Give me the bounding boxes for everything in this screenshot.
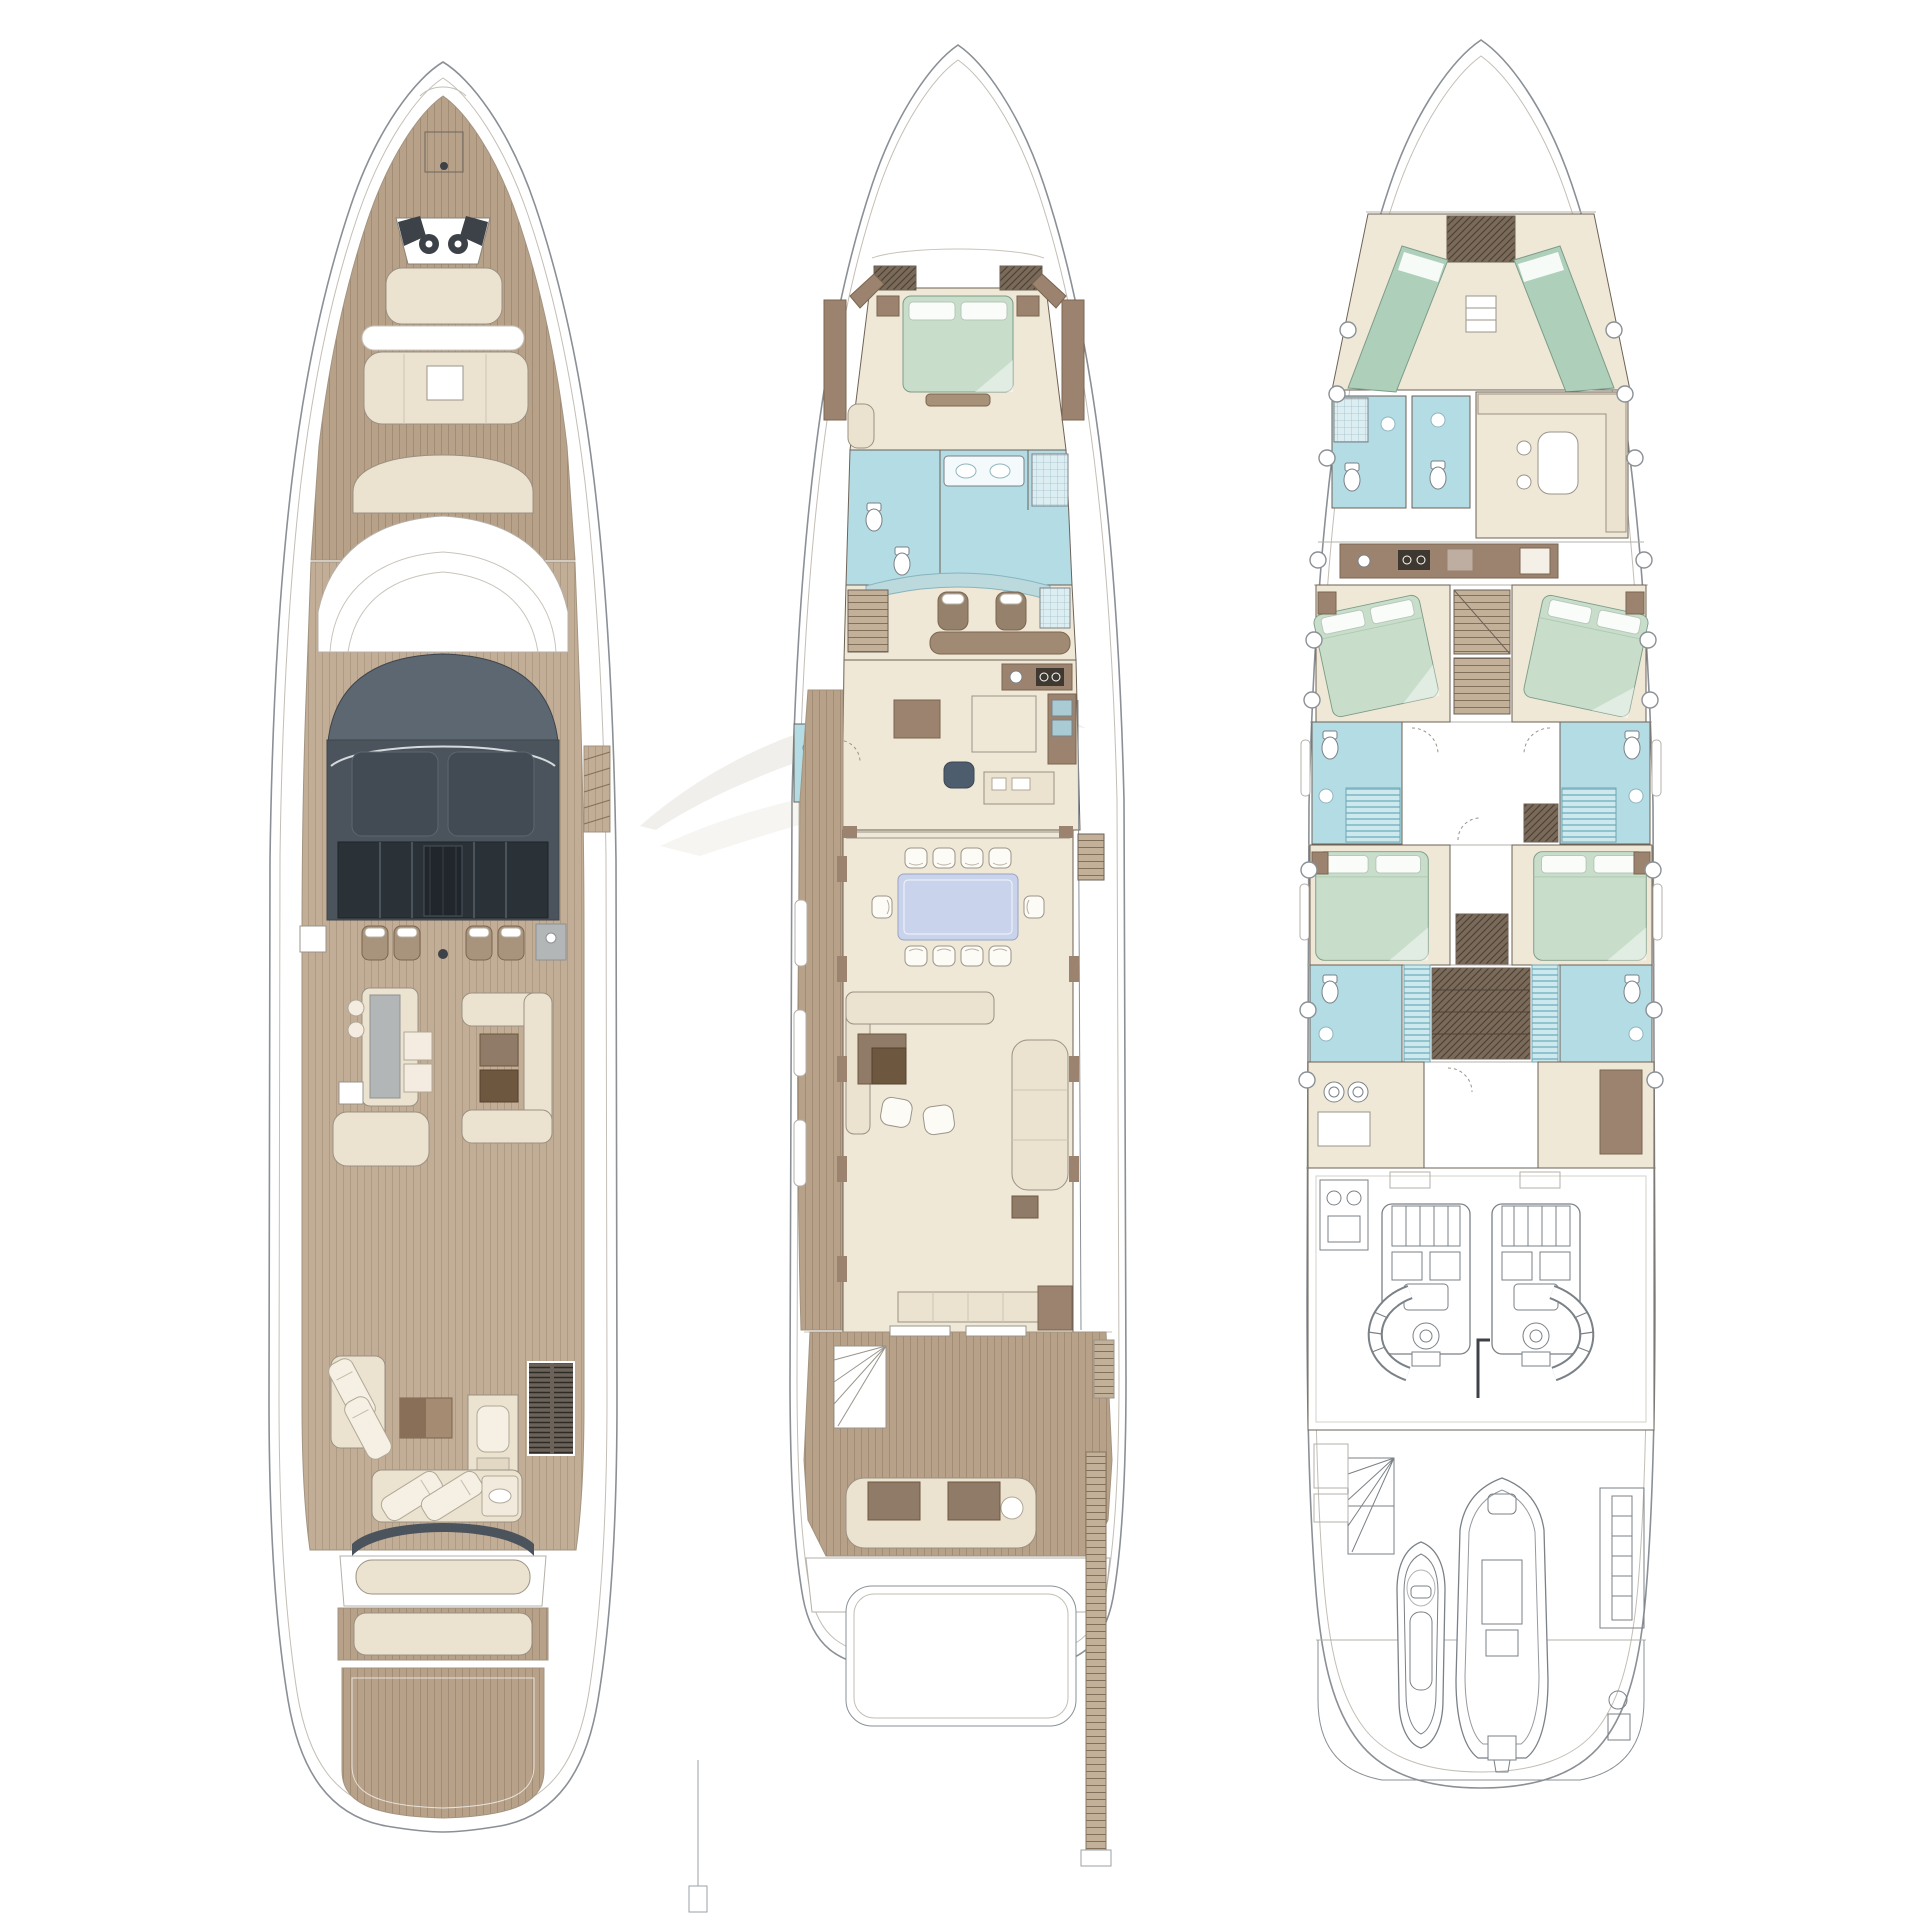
sink [1381,417,1395,431]
sink [1319,789,1333,803]
flybridge-helm-seat [498,926,524,960]
engine-room [1308,1168,1654,1430]
wheelhouse-helm-seat [938,592,968,630]
galley-sink [1358,555,1370,567]
window-mullion [837,1156,847,1182]
bed-bench [926,394,990,406]
port-engine [1368,1204,1470,1374]
shower [1404,965,1430,1062]
galley-island [972,696,1036,752]
flybridge-helm-seat [466,926,492,960]
louvered-vent [528,1362,574,1455]
fridge [1052,720,1072,736]
crew-wardrobe [1447,216,1515,262]
deck-table-half [400,1398,426,1438]
galley-sink [1010,671,1022,683]
bar-table [404,1064,432,1092]
coffee-table [872,1048,906,1084]
hatch-fitting [440,162,448,170]
desk-item [1012,778,1030,790]
yacht-deck-plans-page [0,0,1920,1922]
passerelle [1086,1452,1106,1850]
settee-table [427,366,463,400]
fridge [1052,700,1072,716]
side-table [1012,1196,1038,1218]
dresser-starboard [1062,300,1084,420]
chaise-sofa [1012,1040,1068,1190]
dresser-port [824,300,846,420]
desk-chair [944,762,974,788]
main-deck-plan [640,45,1126,1866]
bar-stool [348,1000,364,1016]
toilet [1322,731,1338,759]
chart-table [1040,588,1070,628]
aft-band-sunpad [356,1560,530,1594]
fridge [1520,548,1550,574]
stair-down [848,590,888,652]
stool [1517,475,1531,489]
sink [1629,789,1643,803]
guest-bed [1316,852,1429,961]
counter [1318,1112,1370,1146]
wheelhouse-helm-seat [996,592,1026,630]
appliance [1448,550,1472,570]
port-side-deck [798,690,843,1330]
toilet [1344,463,1360,491]
sink [1431,413,1445,427]
shower [1532,965,1558,1062]
bed-pillow [909,302,955,320]
cabinet [1600,1070,1642,1154]
flybridge-helm-seat [394,926,420,960]
window-mullion [1069,1156,1079,1182]
lower-deck-plan [1299,40,1663,1788]
owner-cabin [824,266,1084,450]
window-mullion [837,1056,847,1082]
dining-table [898,874,1018,940]
hull-window [1301,740,1310,796]
door-post [1059,826,1073,838]
hull-window [1300,884,1309,940]
door-post [843,826,857,838]
window-mullion [1069,1056,1079,1082]
side-table [300,926,326,952]
side-stairs-starboard [584,746,610,832]
stair-strip [1094,1340,1114,1398]
salon-sofa-seat [846,992,994,1024]
washer [1348,1082,1368,1102]
crew-bathroom [1412,396,1470,508]
control-cabinet [1320,1180,1368,1250]
windlass-cap [455,241,462,248]
window-mullion [837,956,847,982]
helm-platform [930,632,1070,654]
cockpit-door [890,1326,950,1336]
walkway-band [362,326,524,350]
coffee-table [480,1070,518,1102]
bar-stool [348,1022,364,1038]
flybridge-sofa-port [333,1112,429,1166]
cabinet-pad [477,1406,509,1452]
companionway-step [1466,296,1496,332]
tender-boat [1456,1478,1548,1772]
sink [1319,1027,1333,1041]
desk-item [992,778,1006,790]
nightstand [1017,296,1039,316]
bow-sunpad [386,268,502,324]
owner-bathroom [846,450,1072,585]
central-stair-block [1432,968,1530,1059]
stair-starboard [1078,834,1104,880]
hull-window [795,900,807,966]
nightstand [1318,592,1336,614]
toilet [1624,975,1640,1003]
side-table [339,1082,363,1104]
toilet [1624,731,1640,759]
bidet [866,503,882,531]
passerelle-foot [689,1886,707,1912]
sink [990,464,1010,478]
washer [1324,1082,1344,1102]
toilet [1322,975,1338,1003]
lowered-swim-platform [846,1586,1076,1726]
cockpit-fan-stairs [834,1346,886,1428]
window-mullion [837,1256,847,1282]
hull-window [1652,740,1661,796]
passerelle-foot [1081,1850,1111,1866]
hardtop-skylight [352,752,438,836]
crew-shower [1334,398,1368,442]
bed-pillow [961,302,1007,320]
shower [1032,454,1068,506]
closet [1524,804,1558,842]
armchair [879,1096,913,1129]
hardtop-skylight [448,752,534,836]
bar-sink [546,933,556,943]
bench-cushion [948,1482,1000,1520]
toilet [894,547,910,575]
coffee-table [480,1034,518,1066]
forward-guest-cabins [1312,585,1649,722]
nightstand [877,296,899,316]
sun-deck-plan [269,62,707,1912]
starboard-engine [1492,1204,1594,1374]
hull-window [1653,884,1662,940]
dining-salon [837,826,1104,1332]
table-pedestal [438,949,448,959]
aft-bathrooms [1310,965,1652,1062]
hull-window [794,1120,806,1186]
crew-galley [1340,544,1558,578]
garage-fan-stairs [1348,1458,1394,1554]
jet-ski [1397,1542,1445,1748]
cockpit-door [966,1326,1026,1336]
aft-cockpit [804,1326,1114,1556]
wheelhouse [844,573,1076,660]
flybridge-helm-seat [362,926,388,960]
window-mullion [837,856,847,882]
shower [1562,788,1616,842]
central-wardrobe [1456,914,1508,964]
toilet [1430,461,1446,489]
tray-dish [489,1489,511,1503]
bench-cushion [868,1482,920,1520]
guest-bed [1534,852,1647,961]
chaise [848,404,874,448]
sink [956,464,976,478]
nightstand [1626,592,1644,614]
crew-mess [1476,392,1628,538]
stool [1517,441,1531,455]
observation-seat [353,455,533,513]
windlass-cap [426,241,433,248]
outboard-engine [1488,1736,1516,1760]
window-mullion [1069,956,1079,982]
sink [1629,1027,1643,1041]
aft-sunpad [354,1613,532,1655]
cockpit-table [1001,1497,1023,1519]
hardtop [327,654,559,920]
armchair [922,1104,956,1136]
swim-platform [342,1668,544,1818]
bar-table [404,1032,432,1060]
hull-window [794,1010,806,1076]
cabinet [1038,1286,1072,1330]
mess-table [1538,432,1578,494]
general-arrangement-drawing [0,0,1920,1922]
pantry-cabinet [894,700,940,738]
shower [1346,788,1400,842]
central-staircase [1454,590,1510,714]
